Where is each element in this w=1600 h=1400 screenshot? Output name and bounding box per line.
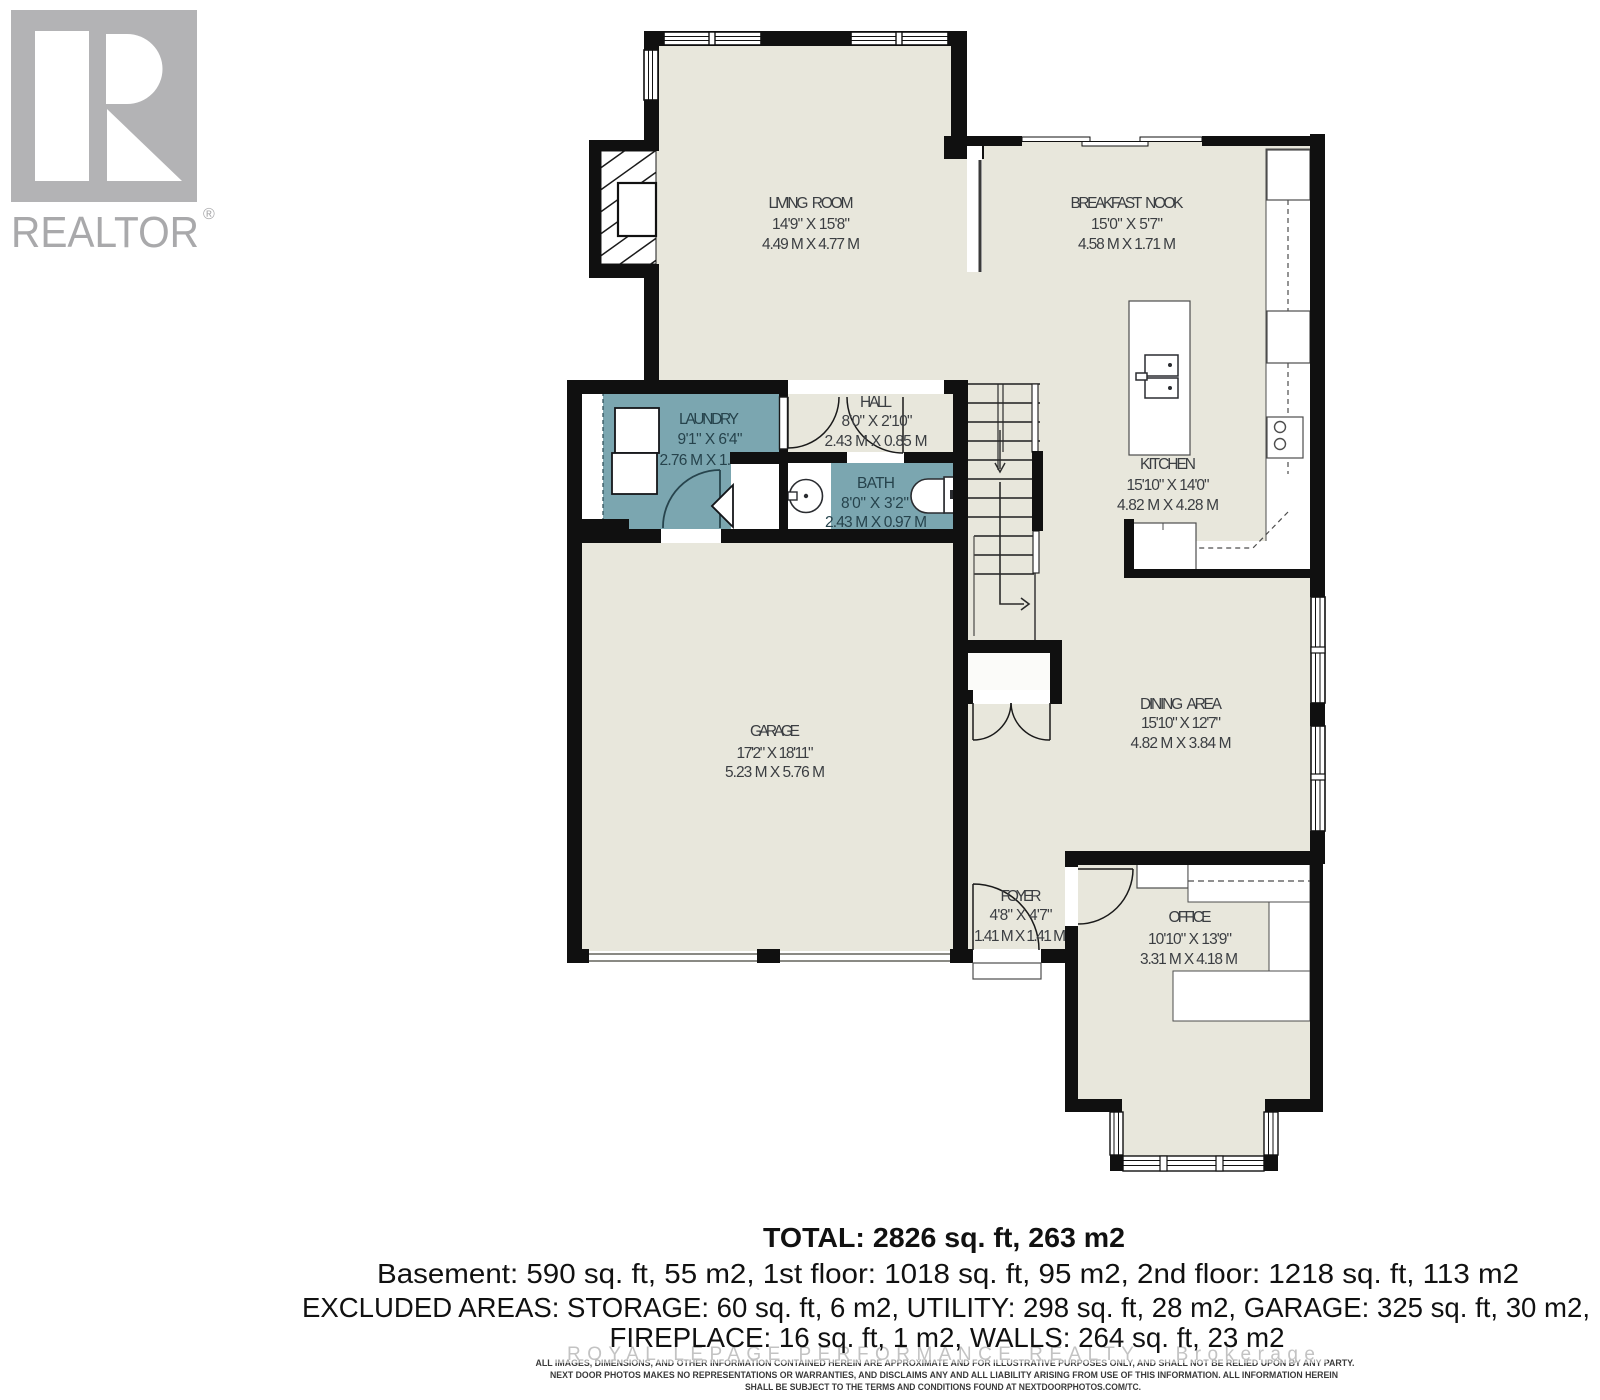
svg-text:BATH: BATH [857, 475, 895, 492]
svg-text:NEXT DOOR PHOTOS MAKES NO REPR: NEXT DOOR PHOTOS MAKES NO REPRESENTATION… [550, 1370, 1338, 1381]
svg-text:SHALL BE SUBJECT TO THE TERMS: SHALL BE SUBJECT TO THE TERMS AND CONDIT… [745, 1382, 1141, 1393]
svg-text:4'8" X 4'7": 4'8" X 4'7" [990, 907, 1053, 924]
svg-text:5.23 M X 5.76 M: 5.23 M X 5.76 M [725, 764, 825, 781]
svg-text:17'2" X 18'11": 17'2" X 18'11" [737, 745, 814, 762]
svg-text:4.49 M X 4.77 M: 4.49 M X 4.77 M [762, 236, 860, 253]
svg-text:15'10" X 14'0": 15'10" X 14'0" [1127, 477, 1210, 494]
svg-text:1.41 M X 1.41 M: 1.41 M X 1.41 M [974, 928, 1066, 945]
svg-text:8'0" X 3'2": 8'0" X 3'2" [841, 495, 909, 512]
svg-text:14'9" X 15'8": 14'9" X 15'8" [772, 216, 850, 233]
svg-text:REALTOR: REALTOR [11, 208, 199, 257]
svg-text:HALL: HALL [860, 394, 892, 411]
svg-text:Basement: 590 sq. ft, 55 m2, 1: Basement: 590 sq. ft, 55 m2, 1st floor: … [377, 1258, 1519, 1289]
svg-text:2.43 M X 0.97 M: 2.43 M X 0.97 M [825, 514, 927, 531]
svg-text:EXCLUDED AREAS: STORAGE: 60 sq: EXCLUDED AREAS: STORAGE: 60 sq. ft, 6 m2… [302, 1292, 1590, 1323]
svg-text:2.43 M X 0.85 M: 2.43 M X 0.85 M [825, 433, 928, 450]
svg-text:4.58 M X 1.71 M: 4.58 M X 1.71 M [1078, 236, 1176, 253]
svg-text:®: ® [203, 206, 215, 223]
svg-text:4.82 M X 3.84 M: 4.82 M X 3.84 M [1131, 735, 1232, 752]
svg-text:FOYER: FOYER [1001, 888, 1042, 905]
svg-text:10'10" X 13'9": 10'10" X 13'9" [1148, 931, 1232, 948]
svg-text:8'0" X 2'10": 8'0" X 2'10" [842, 413, 913, 430]
svg-text:TOTAL: 2826 sq. ft, 263 m2: TOTAL: 2826 sq. ft, 263 m2 [763, 1222, 1125, 1253]
svg-text:OFFICE: OFFICE [1169, 909, 1212, 926]
svg-text:DINING AREA: DINING AREA [1140, 696, 1223, 713]
svg-text:9'1" X 6'4": 9'1" X 6'4" [678, 431, 743, 448]
svg-text:GARAGE: GARAGE [750, 723, 800, 740]
svg-text:15'0" X 5'7": 15'0" X 5'7" [1091, 216, 1163, 233]
svg-text:BREAKFAST NOOK: BREAKFAST NOOK [1071, 195, 1185, 212]
svg-text:4.82 M X 4.28 M: 4.82 M X 4.28 M [1117, 497, 1219, 514]
svg-text:3.31 M X 4.18 M: 3.31 M X 4.18 M [1140, 951, 1238, 968]
svg-text:15'10" X 12'7": 15'10" X 12'7" [1141, 715, 1221, 732]
svg-text:LAUNDRY: LAUNDRY [679, 411, 739, 428]
svg-text:KITCHEN: KITCHEN [1140, 456, 1196, 473]
svg-text:LIVING ROOM: LIVING ROOM [769, 195, 854, 212]
svg-text:FIREPLACE: 16 sq. ft, 1 m2, WA: FIREPLACE: 16 sq. ft, 1 m2, WALLS: 264 s… [610, 1322, 1285, 1353]
